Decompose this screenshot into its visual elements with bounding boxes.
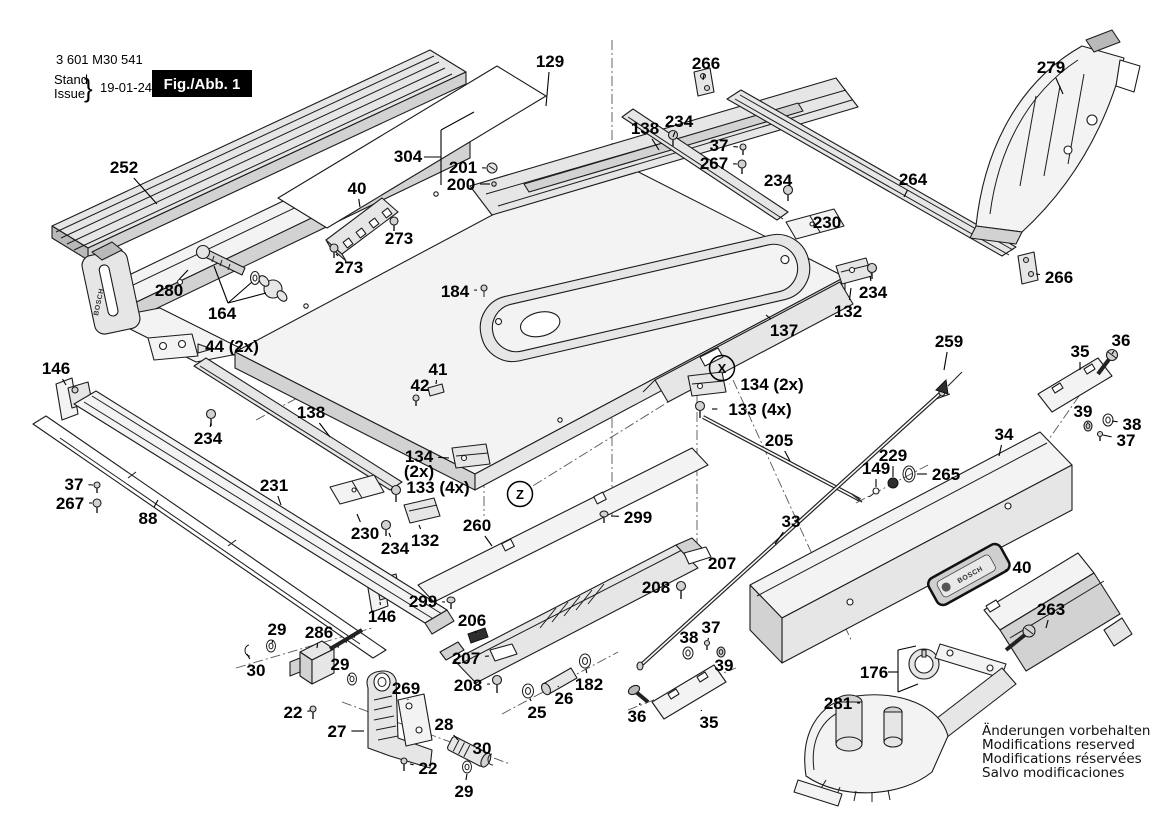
leader-230 xyxy=(357,514,360,522)
part-label-234: 234 xyxy=(381,539,410,558)
part-label-279: 279 xyxy=(1037,58,1065,77)
part-label-129: 129 xyxy=(536,52,564,71)
leader-132 xyxy=(849,288,851,300)
part-label-252: 252 xyxy=(110,158,138,177)
leader-259 xyxy=(944,352,947,370)
washer-29-b xyxy=(348,673,357,685)
part-label-267: 267 xyxy=(700,154,728,173)
plate-269 xyxy=(398,694,432,746)
brace: } xyxy=(84,73,93,103)
part-label-273: 273 xyxy=(335,258,363,277)
part-label-37: 37 xyxy=(65,475,84,494)
part-label-26: 26 xyxy=(555,689,574,708)
stand-label: Stand xyxy=(54,72,88,87)
part-label-138: 138 xyxy=(631,119,659,138)
part-label-27: 27 xyxy=(328,722,347,741)
washer-29-a xyxy=(267,640,276,652)
part-label-36: 36 xyxy=(1112,331,1131,350)
screw-22-b xyxy=(401,758,407,771)
plate-230-left xyxy=(330,475,384,504)
part-label-304: 304 xyxy=(394,147,423,166)
part-label-29: 29 xyxy=(455,782,474,801)
pin-299-left xyxy=(447,597,455,609)
part-label-146: 146 xyxy=(368,607,396,626)
pin-37-left xyxy=(94,482,100,493)
part-label-267: 267 xyxy=(56,494,84,513)
part-label-30: 30 xyxy=(473,739,492,758)
screw-36-bottom xyxy=(627,684,648,702)
exploded-parts-diagram: BOSCH xyxy=(0,0,1166,824)
part-label-269: 269 xyxy=(392,679,420,698)
part-label-264: 264 xyxy=(899,170,928,189)
part-label-280: 280 xyxy=(155,281,183,300)
leader-29 xyxy=(349,675,350,676)
part-label-200: 200 xyxy=(447,175,475,194)
part-label-208: 208 xyxy=(642,578,670,597)
bracket-134-left xyxy=(452,444,490,468)
washer-182 xyxy=(580,654,591,668)
part-label-138: 138 xyxy=(297,403,325,422)
part-label-132: 132 xyxy=(411,531,439,550)
leader-234 xyxy=(389,533,391,537)
part-label-137: 137 xyxy=(770,321,798,340)
part-label-1334x: 133 (4x) xyxy=(728,400,791,419)
part-label-25: 25 xyxy=(528,703,547,722)
part-label-149: 149 xyxy=(862,459,890,478)
part-label-205: 205 xyxy=(765,431,793,450)
leader-286 xyxy=(317,643,318,648)
part-label-40: 40 xyxy=(348,179,367,198)
leader-22 xyxy=(410,764,414,765)
parts-diagram-page: BOSCH xyxy=(0,0,1166,824)
part-label-36: 36 xyxy=(628,707,647,726)
part-label-37: 37 xyxy=(702,618,721,637)
leader-129 xyxy=(546,72,549,106)
leader-182 xyxy=(586,669,587,673)
part-label-132: 132 xyxy=(834,302,862,321)
part-label-34: 34 xyxy=(995,425,1014,444)
screw-267-left xyxy=(93,499,101,513)
title-block: 3 601 M30 541 Stand Issue } 19-01-24 Fig… xyxy=(54,52,252,103)
part-label-231: 231 xyxy=(260,476,288,495)
part-label-281: 281 xyxy=(824,694,852,713)
part-label-1342x: 134 (2x) xyxy=(740,375,803,394)
leader-132 xyxy=(419,525,421,529)
part-label-265: 265 xyxy=(932,465,960,484)
part-label-42: 42 xyxy=(411,376,430,395)
pin-37-top xyxy=(740,144,746,155)
washer-38-bottom xyxy=(683,647,693,659)
leader-134 xyxy=(438,457,449,458)
view-marker-Z: Z xyxy=(516,487,524,502)
screw-201 xyxy=(487,163,497,173)
part-label-184: 184 xyxy=(441,282,470,301)
screw-267-top xyxy=(738,160,746,174)
clamp-266-right xyxy=(1018,252,1038,284)
leader-231 xyxy=(278,496,281,505)
pin-37-right xyxy=(1098,432,1103,442)
part-label-266: 266 xyxy=(1045,268,1073,287)
part-label-39: 39 xyxy=(715,656,734,675)
part-label-259: 259 xyxy=(935,332,963,351)
screw-22-a xyxy=(310,706,316,719)
leader-29 xyxy=(466,774,467,780)
part-label-234: 234 xyxy=(665,112,694,131)
part-label-41: 41 xyxy=(429,360,448,379)
part-label-38: 38 xyxy=(680,628,699,647)
pin-37-bottom xyxy=(705,641,710,651)
leader-266 xyxy=(1036,274,1040,275)
nut-229 xyxy=(888,478,898,488)
part-label-442x: 44 (2x) xyxy=(205,337,259,356)
part-label-40: 40 xyxy=(1013,558,1032,577)
part-label-273: 273 xyxy=(385,229,413,248)
part-label-29: 29 xyxy=(331,655,350,674)
part-label-182: 182 xyxy=(575,675,603,694)
notice-es: Salvo modificaciones xyxy=(982,765,1124,781)
part-label-299: 299 xyxy=(409,592,437,611)
part-label-35: 35 xyxy=(1071,342,1090,361)
part-label-22: 22 xyxy=(284,703,303,722)
part-label-263: 263 xyxy=(1037,600,1065,619)
screw-133-left xyxy=(392,486,401,503)
part-label-146: 146 xyxy=(42,359,70,378)
leader-260 xyxy=(485,536,492,546)
leader-26 xyxy=(558,686,559,687)
leader-35 xyxy=(701,710,702,711)
part-label-30: 30 xyxy=(247,661,266,680)
part-label-39: 39 xyxy=(1074,402,1093,421)
wedge-206 xyxy=(468,628,488,643)
part-label-35: 35 xyxy=(700,713,719,732)
part-label-1334x: 133 (4x) xyxy=(406,478,469,497)
rod-205 xyxy=(703,417,862,502)
screw-273-b xyxy=(330,244,338,258)
leader-206 xyxy=(475,631,476,633)
issue-date: 19-01-24 xyxy=(100,80,152,95)
leader-234 xyxy=(210,423,211,427)
part-label-207: 207 xyxy=(452,649,480,668)
screw-208-left xyxy=(493,676,502,694)
part-label-234: 234 xyxy=(764,171,793,190)
pin-200 xyxy=(492,182,496,186)
part-label-176: 176 xyxy=(860,663,888,682)
ring-265 xyxy=(903,466,915,482)
leader-37 xyxy=(1103,435,1112,437)
part-label-234: 234 xyxy=(194,429,223,448)
pin-299-right xyxy=(600,511,608,523)
issue-label: Issue xyxy=(54,86,85,101)
part-label-37: 37 xyxy=(710,136,729,155)
type-number: 3 601 M30 541 xyxy=(56,52,143,67)
part-label-299: 299 xyxy=(624,508,652,527)
part-label-230: 230 xyxy=(351,524,379,543)
part-label-37: 37 xyxy=(1117,431,1136,450)
bracket-132-left xyxy=(404,498,440,523)
figure-label: Fig./Abb. 1 xyxy=(164,76,241,93)
pin-149 xyxy=(869,488,879,497)
part-label-208: 208 xyxy=(454,676,482,695)
washer-29-c xyxy=(463,761,472,773)
bracket-132-right xyxy=(836,258,872,284)
disclaimer: Änderungen vorbehalten Modifications res… xyxy=(982,721,1150,781)
leader-25 xyxy=(530,699,531,701)
part-label-206: 206 xyxy=(458,611,486,630)
part-label-266: 266 xyxy=(692,54,720,73)
part-label-33: 33 xyxy=(782,512,801,531)
screw-208-right xyxy=(677,582,686,600)
part-label-207: 207 xyxy=(708,554,736,573)
part-label-88: 88 xyxy=(139,509,158,528)
part-label-260: 260 xyxy=(463,516,491,535)
view-marker-X: X xyxy=(718,361,727,376)
part-label-230: 230 xyxy=(813,213,841,232)
part-label-29: 29 xyxy=(268,620,287,639)
washer-25 xyxy=(523,684,534,698)
part-label-286: 286 xyxy=(305,623,333,642)
part-label-164: 164 xyxy=(208,304,237,323)
leader-41 xyxy=(436,380,437,384)
washer-38-right xyxy=(1103,414,1113,426)
part-label-22: 22 xyxy=(419,759,438,778)
part-label-234: 234 xyxy=(859,283,888,302)
part-label-28: 28 xyxy=(435,715,454,734)
